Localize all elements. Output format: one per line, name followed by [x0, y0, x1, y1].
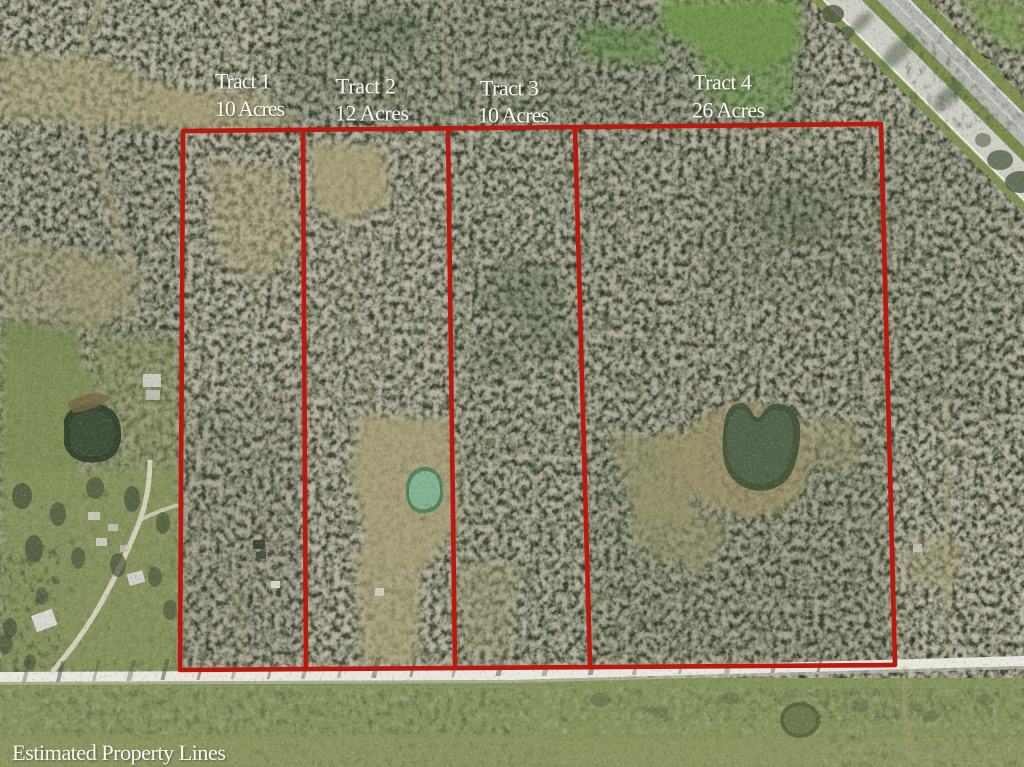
svg-text:Tract 1: Tract 1	[215, 69, 271, 94]
svg-text:10 Acres: 10 Acres	[215, 96, 285, 121]
svg-text:Tract 3: Tract 3	[480, 76, 539, 101]
svg-text:Estimated Property Lines: Estimated Property Lines	[12, 740, 226, 765]
svg-text:Tract 4: Tract 4	[693, 70, 752, 95]
svg-text:26 Acres: 26 Acres	[692, 98, 765, 123]
svg-text:10 Acres: 10 Acres	[478, 103, 549, 128]
svg-text:Tract 2: Tract 2	[336, 74, 396, 99]
svg-text:12 Acres: 12 Acres	[335, 101, 409, 126]
